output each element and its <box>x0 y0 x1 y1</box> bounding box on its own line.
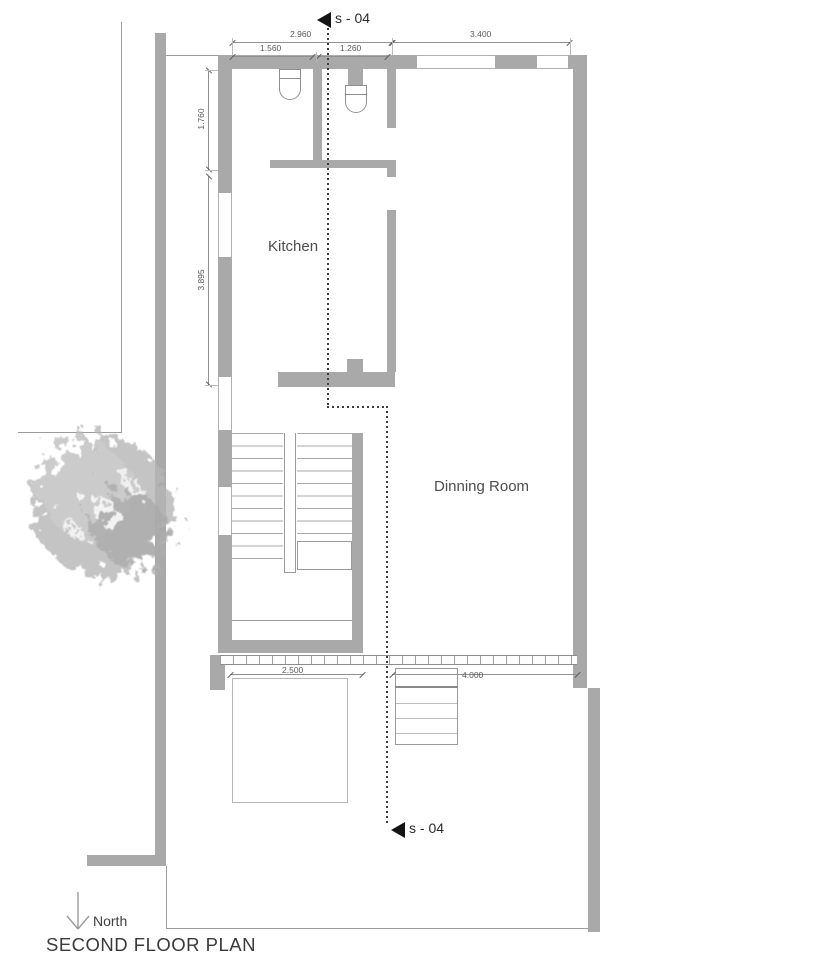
dim-ext-left-1 <box>205 70 218 71</box>
bathroom-divider-wall <box>313 69 322 168</box>
dim-line-top-overall-right <box>392 42 570 43</box>
fence-to-building-line <box>166 55 218 56</box>
dim-ext-left-3 <box>205 385 218 386</box>
dim-line-top-bath-left <box>232 56 313 57</box>
stair-flight-left-treads <box>232 433 283 560</box>
dim-bottom-terrace: 2.500 <box>282 665 303 675</box>
bathroom-east-wall <box>387 69 396 128</box>
terrace-outline <box>232 678 348 803</box>
stair-landing-box <box>297 541 352 570</box>
dim-left-lower: 3.895 <box>196 260 206 300</box>
dim-ext-top-3 <box>570 38 571 55</box>
stair-rail-left-line <box>284 433 285 572</box>
tree-canopy-icon <box>8 412 198 602</box>
dim-ext-top-1 <box>232 38 233 55</box>
bathroom-bottom-wall <box>270 160 396 168</box>
dim-ext-left-2 <box>205 170 218 171</box>
window-left-1 <box>218 193 232 257</box>
dim-ext-top-4 <box>316 52 317 62</box>
exterior-stair-tread-2 <box>396 718 457 719</box>
dim-line-left-upper <box>208 70 209 170</box>
north-label: North <box>93 913 127 929</box>
section-marker-bottom-icon <box>391 822 405 838</box>
room-label-kitchen: Kitchen <box>268 238 318 255</box>
kitchen-counter-wall <box>278 372 395 387</box>
dim-top-bath-left: 1.560 <box>260 43 281 53</box>
window-left-3 <box>218 487 232 535</box>
site-fence-right <box>588 688 600 932</box>
wall-left-c <box>218 430 232 487</box>
stair-rail-cap-line <box>284 572 296 573</box>
stair-east-wall <box>352 433 363 653</box>
wall-top-mid-segment <box>495 55 537 69</box>
dim-line-top-bath-right <box>318 56 388 57</box>
dim-ext-top-2 <box>392 38 393 55</box>
dim-top-bath-right: 1.260 <box>340 43 361 53</box>
property-line-left-vertical <box>121 22 122 433</box>
kitchen-counter-notch <box>347 359 363 372</box>
dim-bottom-deck: 4.000 <box>462 670 483 680</box>
floor-plan-canvas: s - 04 s - 04 2.960 3.400 1.560 1.260 1.… <box>0 0 830 971</box>
dim-line-bottom-deck <box>392 674 578 675</box>
wall-left-d <box>218 535 232 653</box>
deck-band <box>220 655 577 665</box>
site-fence-left-arm <box>87 855 166 866</box>
dim-line-left-lower <box>208 176 209 385</box>
wall-left-b <box>218 257 232 377</box>
room-label-dining: Dinning Room <box>434 478 529 495</box>
kitchen-east-wall <box>387 210 396 372</box>
exterior-stair-tread-3 <box>396 733 457 734</box>
section-marker-top-label: s - 04 <box>335 10 370 26</box>
stair-lower-landing-line <box>232 620 352 621</box>
tree-symbol <box>8 412 198 602</box>
toilet-1 <box>279 69 301 100</box>
section-line-lower <box>386 406 388 823</box>
window-top-1 <box>417 55 495 69</box>
stair-bottom-wall <box>218 640 363 653</box>
wall-left-a <box>218 55 232 193</box>
exterior-stair-tread-1 <box>396 703 457 704</box>
stair-flight-right-treads <box>297 433 352 543</box>
wc2-duct-stub <box>348 69 363 85</box>
wall-right <box>573 55 587 688</box>
property-line-bottom <box>166 928 588 929</box>
window-left-2 <box>218 377 232 430</box>
section-marker-bottom-label: s - 04 <box>409 820 444 836</box>
toilet-2 <box>345 85 367 113</box>
section-line-upper <box>327 28 329 407</box>
bathroom-bottom-stub <box>387 168 396 177</box>
window-top-2 <box>537 55 568 69</box>
section-marker-top-icon <box>317 12 331 28</box>
dim-top-overall-right: 3.400 <box>470 29 491 39</box>
dim-line-top-overall-left <box>232 42 392 43</box>
dim-top-overall-left: 2.960 <box>290 29 311 39</box>
property-line-left-lower <box>166 866 167 928</box>
exterior-stair-landing-edge <box>395 686 458 688</box>
dim-left-upper: 1.760 <box>196 99 206 139</box>
stair-rail-right-line <box>295 433 296 572</box>
section-line-jog <box>327 406 388 408</box>
plan-title: SECOND FLOOR PLAN <box>46 934 256 956</box>
